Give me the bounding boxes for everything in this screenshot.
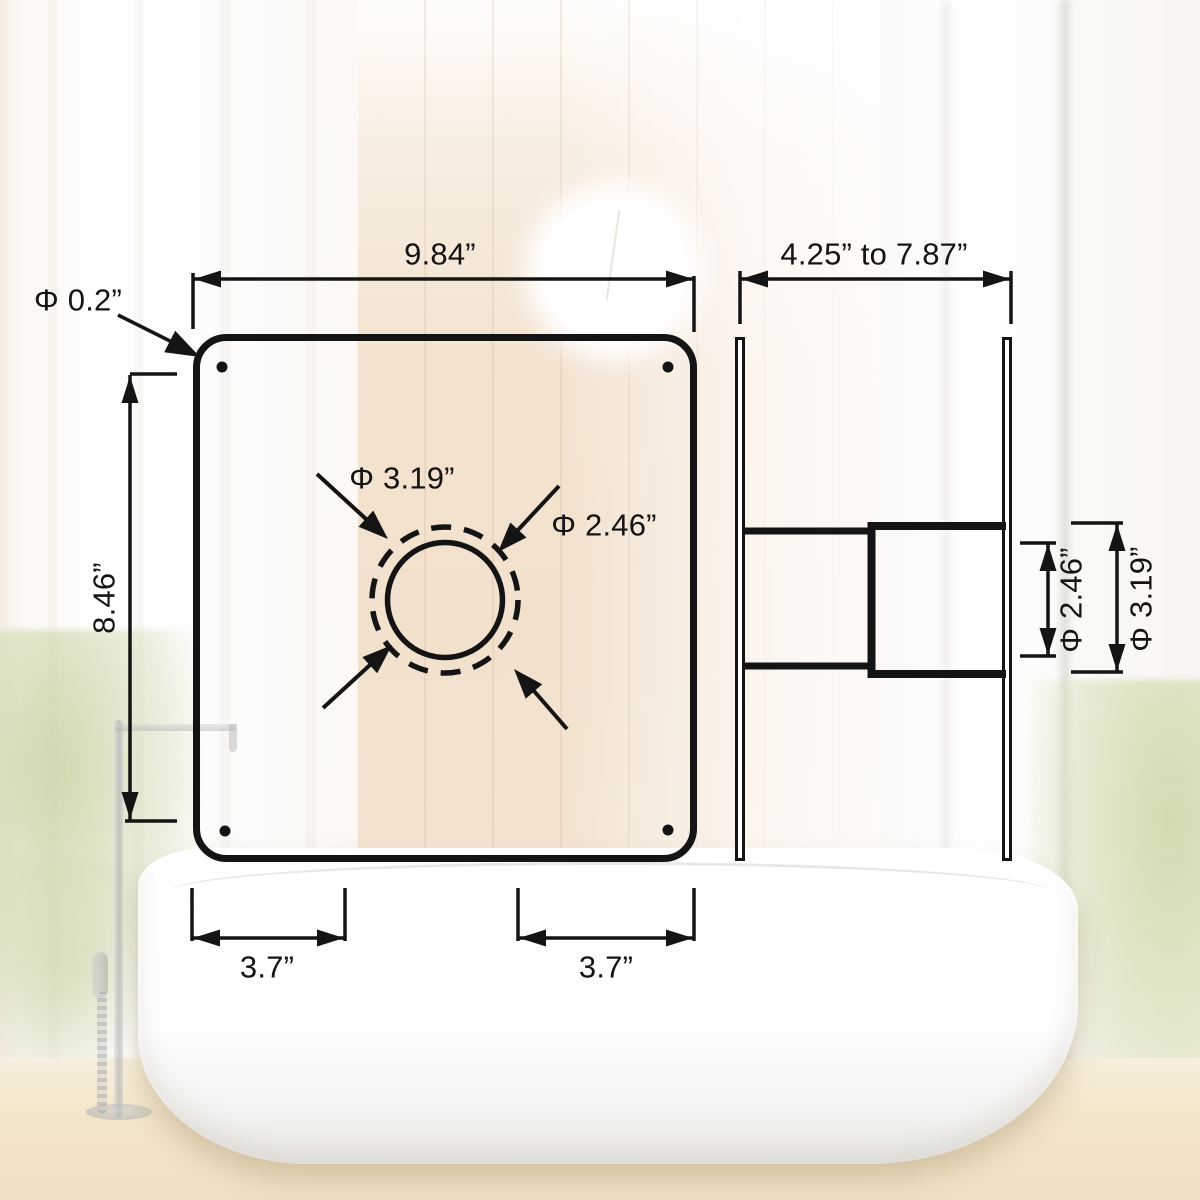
corner-hole-arrowhead (164, 331, 200, 357)
dimension-diagram-screenshot: 9.84” 4.25” to 7.87” Φ 0.2” Φ 3.19” Φ 2.… (0, 0, 1200, 1200)
outer-duct-circle-dashed (372, 527, 518, 673)
inner-duct-circle (388, 543, 503, 658)
corner-hole-diameter-label: Φ 0.2” (34, 285, 122, 316)
height-dimension (125, 374, 177, 821)
corner-hole-callout-line (118, 315, 172, 342)
front-width-dimension-label: 9.84” (404, 239, 476, 270)
hole-spacing-right-label: 3.7” (579, 952, 633, 983)
side-depth-range-label: 4.25” to 7.87” (780, 239, 967, 270)
front-inner-diameter-label: Φ 2.46” (551, 510, 656, 541)
hole-spacing-left-label: 3.7” (240, 952, 294, 983)
width-dimension (193, 273, 694, 332)
mounting-plate-outline (197, 338, 694, 859)
side-view-wall-plate (1004, 339, 1011, 860)
screw-holes (217, 362, 674, 837)
side-outer-diameter-label: Φ 3.19” (1126, 546, 1157, 651)
side-view-outer-tube (868, 522, 1006, 678)
technical-drawing (0, 0, 1200, 1200)
depth-range-dimension (740, 271, 1011, 324)
side-view-front-plate (737, 339, 744, 860)
front-outer-diameter-label: Φ 3.19” (349, 463, 454, 494)
side-view-inner-tube (743, 531, 872, 666)
front-height-dimension-label: 8.46” (89, 562, 120, 634)
side-inner-diameter-label: Φ 2.46” (1056, 547, 1087, 652)
